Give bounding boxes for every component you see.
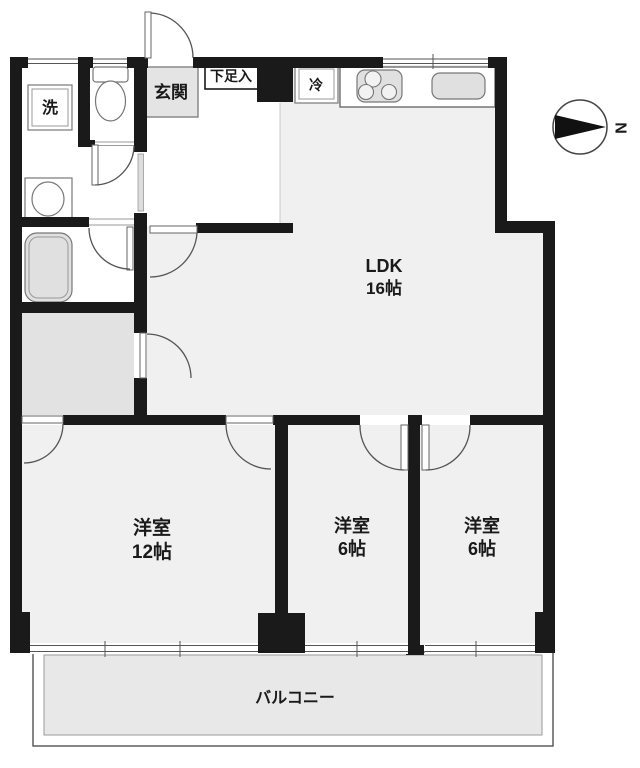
toilet-tank xyxy=(93,67,128,82)
window-bedroom1-band xyxy=(30,643,258,654)
wall-inner-vertical xyxy=(134,57,147,152)
bedroom1-size-label: 12帖 xyxy=(132,540,172,563)
wall-inner-vertical xyxy=(134,378,147,415)
bedroom2-size-label: 6帖 xyxy=(338,538,366,559)
bathroom-door-arc xyxy=(89,228,130,269)
wall-pier xyxy=(535,612,555,653)
storage-door-leaf xyxy=(140,333,146,378)
toilet-door-jamb xyxy=(95,142,134,146)
wall-pier xyxy=(258,613,305,653)
compass-north-label: N xyxy=(611,122,628,134)
balcony-label: バルコニー xyxy=(255,689,335,707)
wall-inner-vertical xyxy=(134,213,147,333)
bedroom2-door-leaf xyxy=(401,425,408,470)
entrance-label: 玄関 xyxy=(154,82,188,102)
bathroom-door-leaf xyxy=(127,227,133,270)
wall-bedroom1-2 xyxy=(275,415,288,615)
wall-right-upper xyxy=(495,57,507,233)
wall-bath-bottom xyxy=(10,302,147,313)
laundry-label: 洗 xyxy=(42,98,58,117)
bedroom2-label: 洋室 xyxy=(334,515,370,536)
bedroom3-size-label: 6帖 xyxy=(468,538,496,559)
compass: N xyxy=(553,100,628,154)
bedroom1-door-a-leaf xyxy=(22,416,63,423)
wall-right-outer xyxy=(543,221,555,653)
wall-pier xyxy=(406,645,424,655)
hall-ldk-door-leaf xyxy=(150,226,197,233)
refrigerator-label: 冷 xyxy=(309,77,323,93)
stove-burner xyxy=(359,85,374,100)
wall-bath-top xyxy=(22,217,89,227)
floor-plan: N 洗 玄関 下足入 冷 LDK 16帖 洋室 12帖 洋室 6帖 洋室 6帖 … xyxy=(0,0,640,768)
toilet-bowl xyxy=(96,81,126,121)
wall-ldk-bedrooms xyxy=(470,415,555,425)
wall-top xyxy=(10,57,28,68)
bathroom-door-jamb xyxy=(89,219,134,225)
room-ldk-lower xyxy=(147,233,543,415)
window-toilet xyxy=(93,59,127,64)
wall-bedroom2-3 xyxy=(408,415,420,647)
window-bedroom3-band xyxy=(425,643,535,654)
wall-ldk-bedrooms xyxy=(63,415,226,425)
bedroom1-label: 洋室 xyxy=(133,516,171,539)
wall-toilet-left xyxy=(78,57,90,147)
bedroom3-label: 洋室 xyxy=(464,515,500,536)
wall-hall-south xyxy=(196,223,293,233)
ldk-size-label: 16帖 xyxy=(366,278,402,298)
storage-room xyxy=(22,313,137,415)
washroom-sliding-panel xyxy=(138,154,144,211)
wall-kitchen-corner xyxy=(257,57,293,102)
bedroom1-door-b-leaf xyxy=(226,416,273,423)
kitchen-sink xyxy=(432,73,485,99)
entrance-door-arc xyxy=(151,13,193,58)
stove-burner xyxy=(382,85,397,100)
toilet-door-arc xyxy=(95,146,134,185)
window-washroom xyxy=(28,59,78,64)
toilet-door-leaf xyxy=(92,145,98,185)
washroom-sliding-door xyxy=(134,152,147,213)
wall-left-outer xyxy=(10,57,22,653)
bathtub xyxy=(25,233,72,302)
entrance-door-leaf xyxy=(145,12,151,58)
wall-pier xyxy=(10,612,30,653)
bedroom3-door-leaf xyxy=(422,425,429,470)
ldk-label: LDK xyxy=(366,256,403,276)
shoe-storage-label: 下足入 xyxy=(210,68,252,84)
wash-basin xyxy=(32,182,64,216)
floor-plan-drawing: N 洗 玄関 下足入 冷 LDK 16帖 洋室 12帖 洋室 6帖 洋室 6帖 … xyxy=(0,0,640,768)
